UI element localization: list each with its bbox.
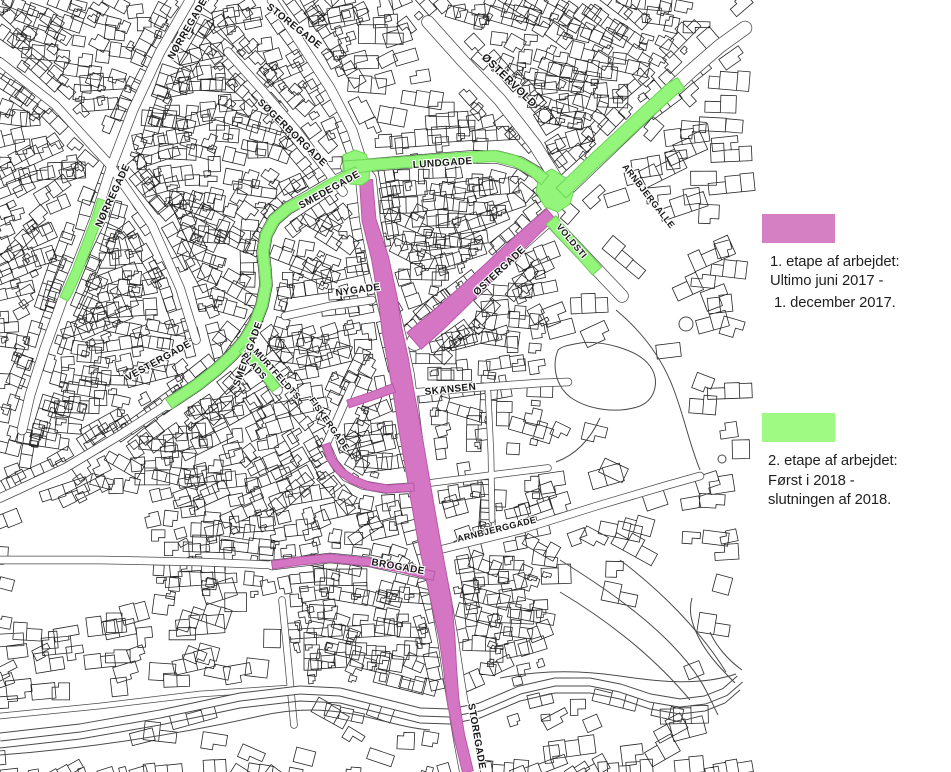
svg-text:2. etape af arbejdet:: 2. etape af arbejdet: xyxy=(768,453,898,469)
svg-text:Først i 2018 -: Først i 2018 - xyxy=(768,473,855,489)
svg-text:1. etape af arbejdet:: 1. etape af arbejdet: xyxy=(770,254,900,270)
svg-text:1. december 2017.: 1. december 2017. xyxy=(774,295,896,311)
svg-text:slutningen af 2018.: slutningen af 2018. xyxy=(768,492,891,508)
svg-text:Ultimo juni 2017 -: Ultimo juni 2017 - xyxy=(770,273,884,289)
